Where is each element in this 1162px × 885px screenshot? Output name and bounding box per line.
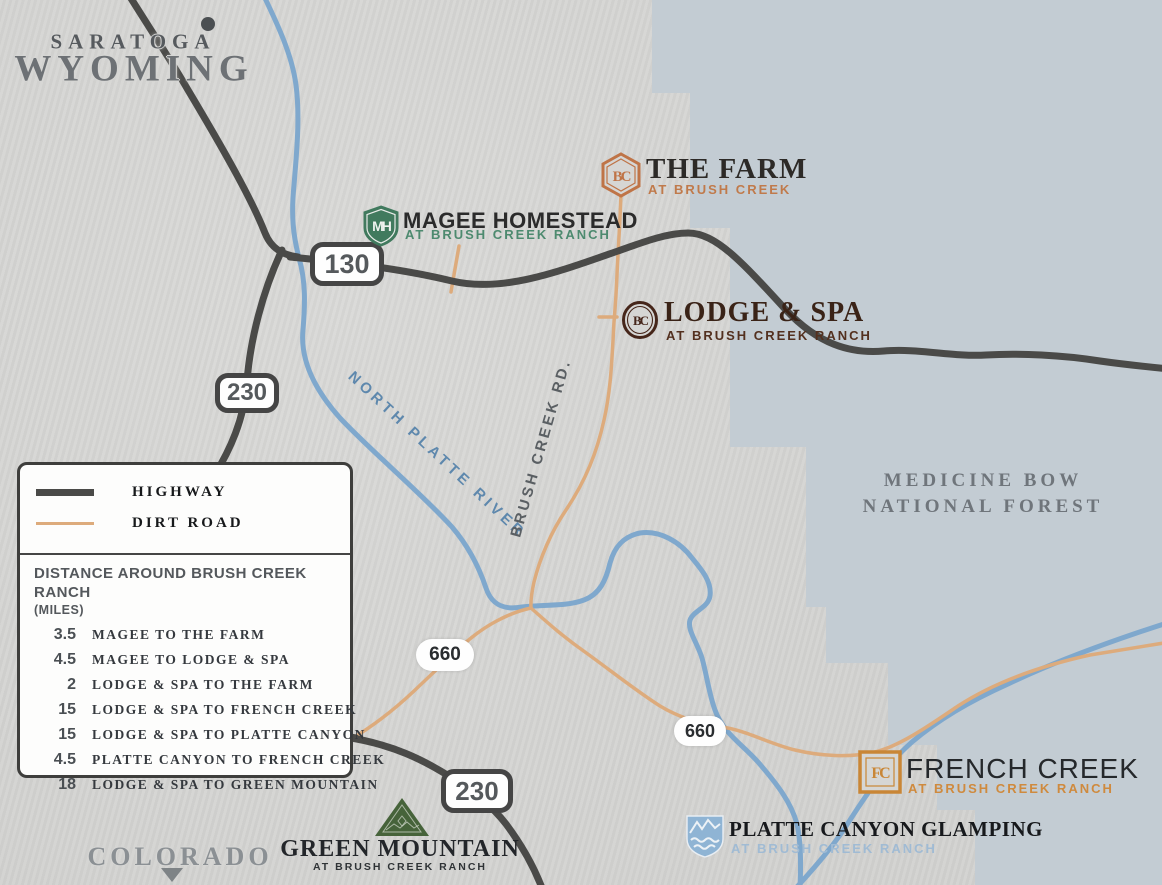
svg-text:BC: BC (633, 313, 649, 328)
svg-text:MH: MH (372, 218, 392, 234)
magee-homestead-logo-icon: MH (362, 204, 400, 248)
svg-text:FC: FC (871, 765, 890, 782)
dirt-road-swatch (36, 522, 94, 525)
distance-miles: 15 (34, 701, 76, 719)
legend-dirt-road-row: DIRT ROAD (36, 508, 334, 539)
magee-homestead-subtitle: AT BRUSH CREEK RANCH (405, 227, 611, 242)
highway-key-label: HIGHWAY (132, 484, 227, 501)
distance-row: 4.5 PLATTE CANYON TO FRENCH CREEK (34, 751, 336, 776)
highway-swatch (36, 489, 94, 496)
road-badge-660-west: 660 (416, 639, 474, 671)
distance-route: LODGE & SPA TO THE FARM (92, 677, 314, 693)
lodge-and-spa-logo-icon: BC (621, 301, 659, 339)
platte-canyon-logo-icon (684, 813, 726, 859)
the-farm-subtitle: AT BRUSH CREEK (648, 182, 791, 197)
distance-title: DISTANCE AROUND BRUSH CREEK RANCH (34, 565, 336, 603)
distance-rows: 3.5 MAGEE TO THE FARM 4.5 MAGEE TO LODGE… (34, 626, 336, 801)
green-mountain-subtitle: AT BRUSH CREEK RANCH (313, 861, 487, 873)
distance-miles: 4.5 (34, 751, 76, 769)
svg-text:BC: BC (613, 169, 631, 185)
wyoming-label: WYOMING (14, 48, 253, 91)
distance-miles: 15 (34, 726, 76, 744)
forest-label-line2: NATIONAL FOREST (863, 496, 1104, 518)
distance-miles: 3.5 (34, 626, 76, 644)
distance-row: 2 LODGE & SPA TO THE FARM (34, 676, 336, 701)
green-mountain-logo-icon (374, 797, 430, 837)
distance-route: LODGE & SPA TO FRENCH CREEK (92, 702, 357, 718)
distance-row: 15 LODGE & SPA TO FRENCH CREEK (34, 701, 336, 726)
distance-route: MAGEE TO LODGE & SPA (92, 652, 290, 668)
distance-route: LODGE & SPA TO PLATTE CANYON (92, 727, 366, 743)
distance-route: PLATTE CANYON TO FRENCH CREEK (92, 752, 385, 768)
distance-miles: 4.5 (34, 651, 76, 669)
distance-route: LODGE & SPA TO GREEN MOUNTAIN (92, 777, 379, 793)
green-mountain-title: GREEN MOUNTAIN (280, 836, 520, 863)
the-farm-logo-icon: BC (600, 152, 642, 202)
distance-row: 15 LODGE & SPA TO PLATTE CANYON (34, 726, 336, 751)
platte-canyon-subtitle: AT BRUSH CREEK RANCH (731, 841, 937, 856)
platte-canyon-title: PLATTE CANYON GLAMPING (729, 817, 1043, 842)
distance-miles: 2 (34, 676, 76, 694)
highway-badge-230-north: 230 (215, 373, 279, 413)
colorado-arrow-icon (161, 868, 183, 882)
distance-unit: (MILES) (34, 603, 336, 617)
dirt-road-660-west (353, 608, 531, 738)
map-legend: HIGHWAY DIRT ROAD DISTANCE AROUND BRUSH … (17, 462, 353, 778)
distance-route: MAGEE TO THE FARM (92, 627, 265, 643)
brush-creek-ranch-map: SARATOGA WYOMING COLORADO MEDICINE BOW N… (0, 0, 1162, 885)
highway-badge-230-south: 230 (441, 769, 513, 813)
forest-label-line1: MEDICINE BOW (884, 470, 1082, 492)
distance-row: 3.5 MAGEE TO THE FARM (34, 626, 336, 651)
lodge-and-spa-title: LODGE & SPA (664, 297, 864, 329)
french-creek-subtitle: AT BRUSH CREEK RANCH (908, 781, 1114, 796)
lodge-and-spa-subtitle: AT BRUSH CREEK RANCH (666, 328, 872, 343)
highway-badge-130: 130 (310, 242, 384, 286)
distance-miles: 18 (34, 776, 76, 794)
french-creek-logo-icon: FC (858, 750, 902, 794)
distance-row: 18 LODGE & SPA TO GREEN MOUNTAIN (34, 776, 336, 801)
legend-highway-row: HIGHWAY (36, 477, 334, 508)
dirt-road-key-label: DIRT ROAD (132, 515, 244, 532)
distance-row: 4.5 MAGEE TO LODGE & SPA (34, 651, 336, 676)
road-badge-660-east: 660 (674, 716, 726, 746)
